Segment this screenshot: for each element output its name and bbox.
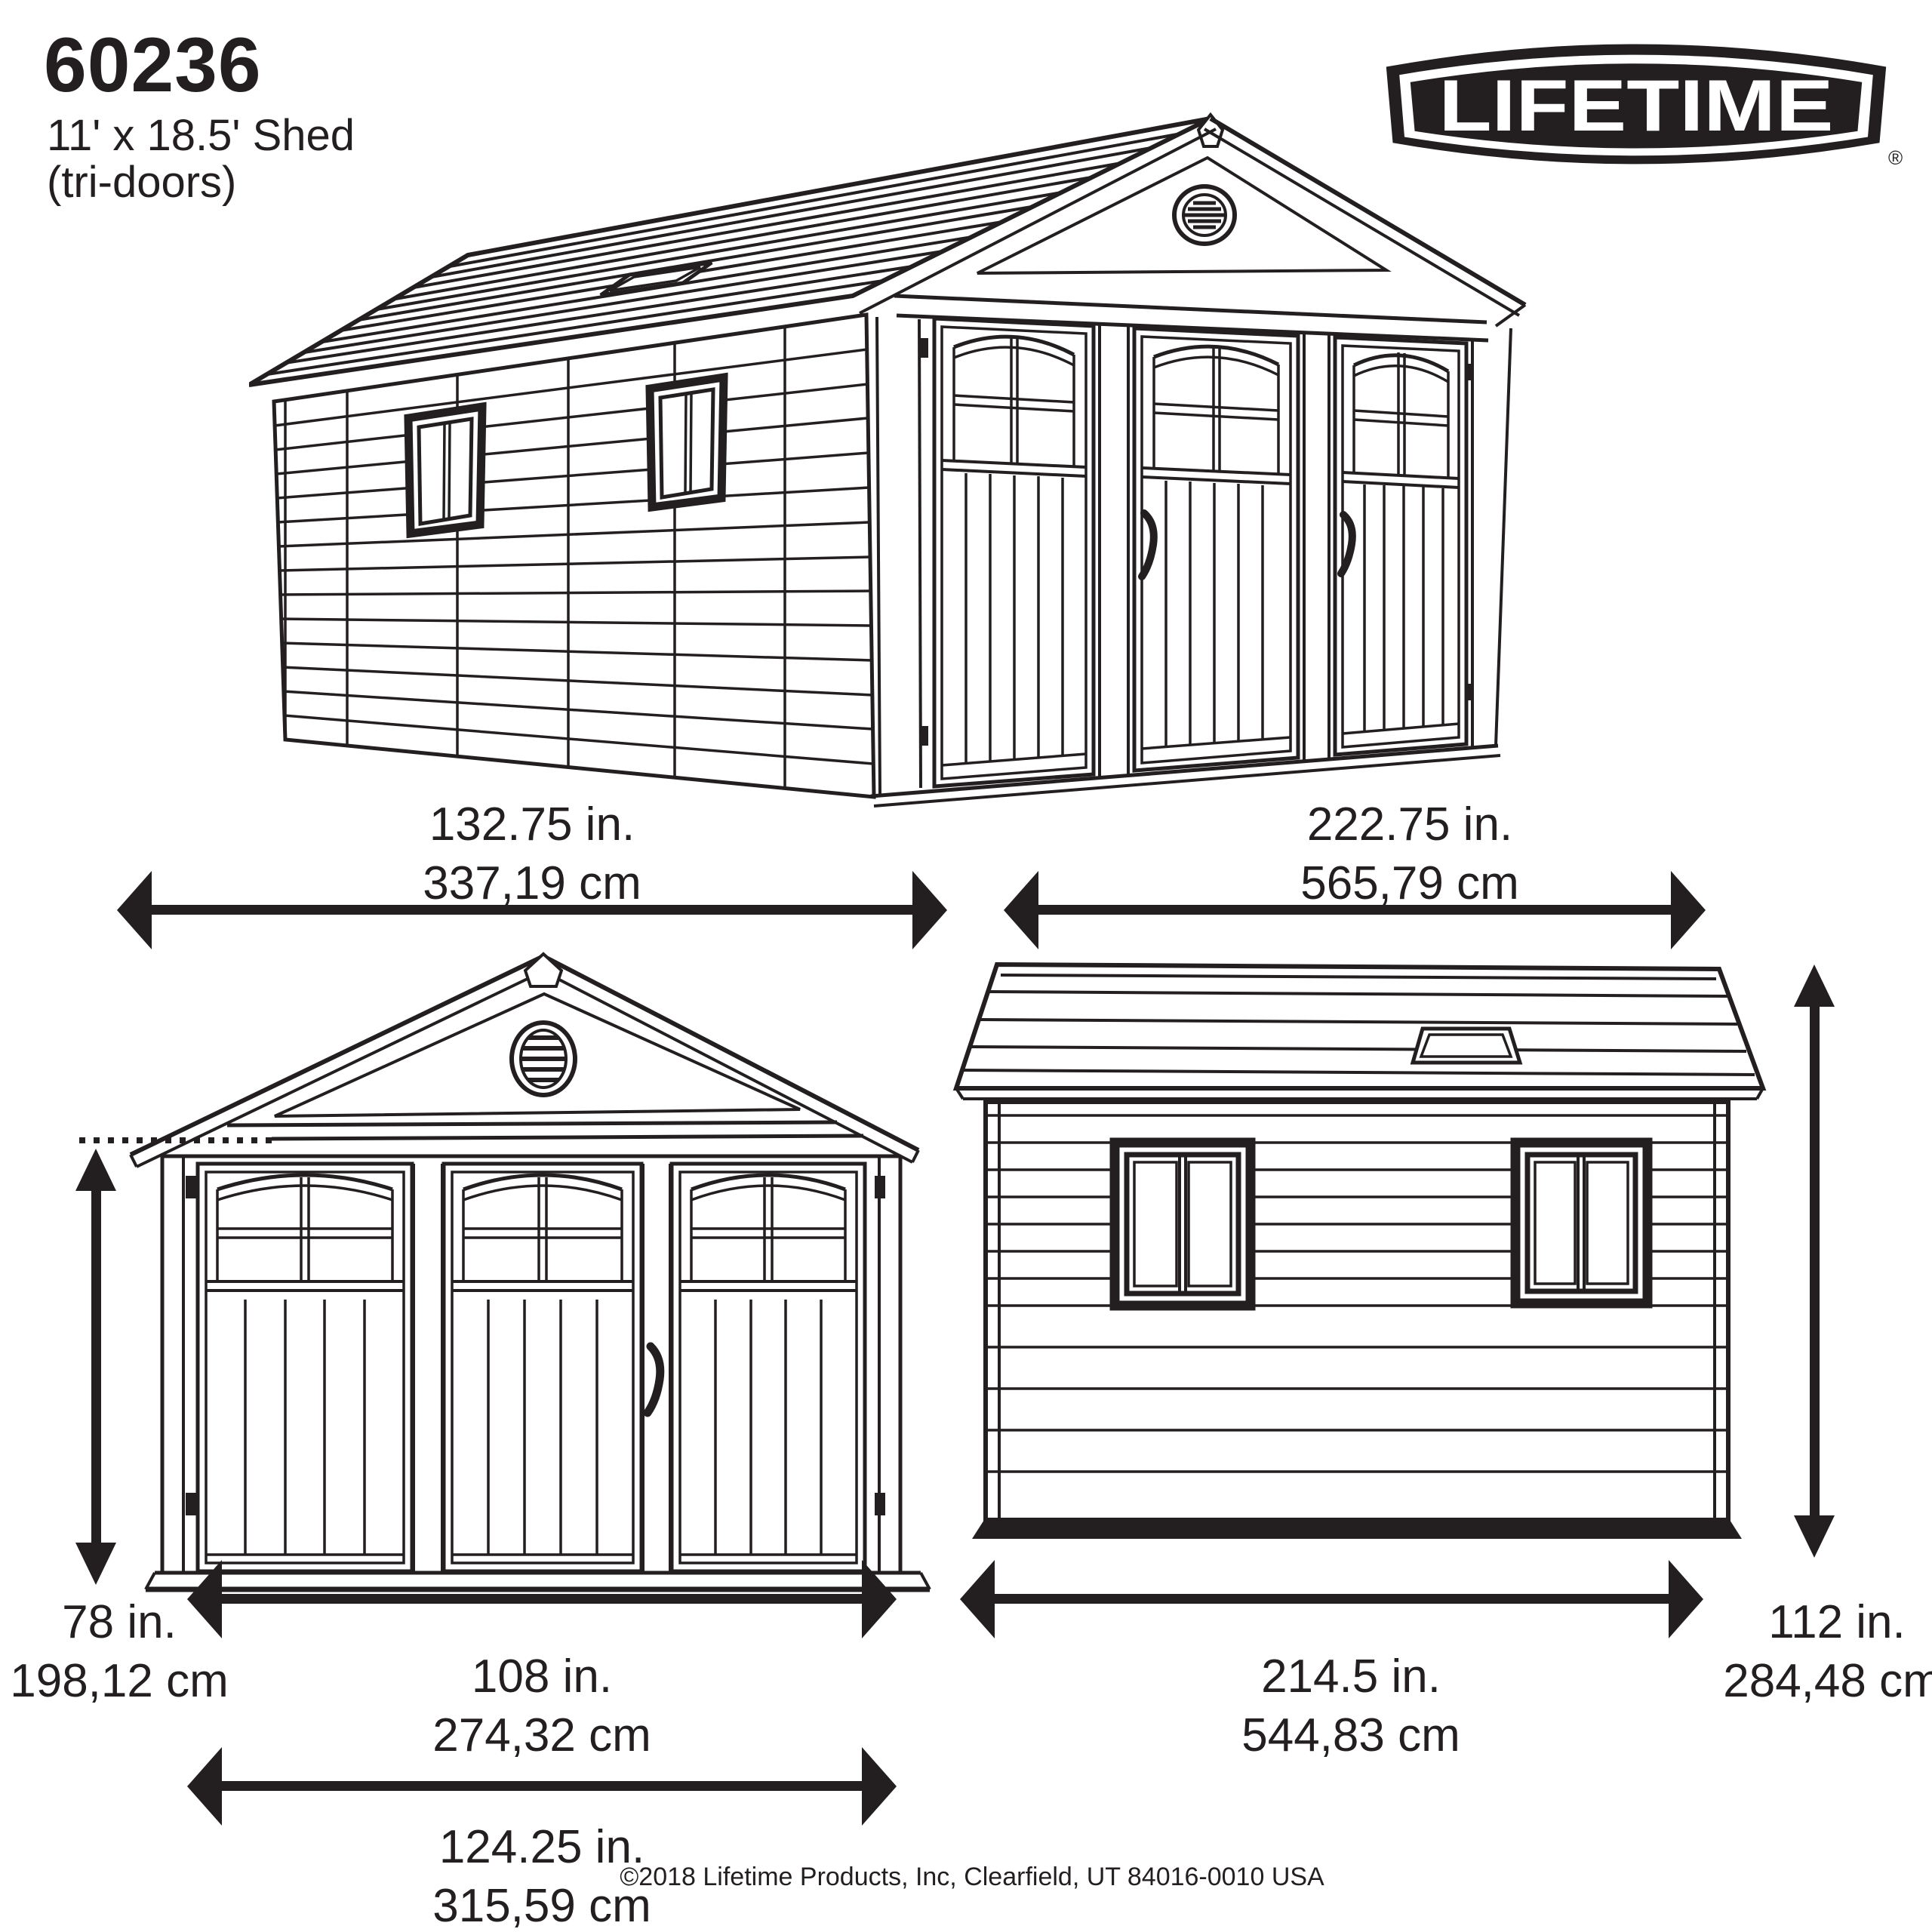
iso-side-window-2 [650,377,724,507]
side-base-width-inches: 214.5 in. [1261,1654,1441,1700]
wall-height-cm: 284,48 cm [1723,1658,1932,1705]
door-height-inches: 78 in. [62,1599,177,1646]
front-door-1 [198,1164,412,1571]
shed-3d-view [249,98,1532,823]
side-base-width-cm: 544,83 cm [1241,1712,1460,1759]
side-overall-width-cm: 565,79 cm [1300,860,1519,907]
iso-door-2 [1134,328,1298,771]
front-base [146,1573,930,1589]
wall-height-arrow [1794,964,1835,1558]
door-opening-width-inches: 108 in. [472,1654,612,1700]
door-height-cm: 198,12 cm [10,1658,229,1705]
front-gable-trim [275,994,800,1116]
front-roof [79,954,918,1167]
product-variant-label: (tri-doors) [47,157,236,208]
front-door-2 [444,1164,660,1571]
side-overall-width-inches: 222.75 in. [1307,801,1512,848]
iso-door-3 [1335,337,1466,755]
front-overall-width-inches: 132.75 in. [429,801,635,848]
shed-spec-sheet: { "colors": { "ink": "#231f20", "paper":… [0,0,1932,1932]
iso-side-wall [274,315,874,797]
door-opening-width-arrow [222,1594,862,1604]
copyright-line: ©2018 Lifetime Products, Inc, Clearfield… [620,1863,1324,1892]
wall-height-inches: 112 in. [1768,1599,1906,1646]
front-overall-width-cm: 337,19 cm [423,860,641,907]
product-model-number: 60236 [44,21,262,109]
shed-front-elevation [15,951,951,1630]
side-base-width-arrow [995,1594,1669,1604]
front-door-3 [672,1164,865,1571]
side-base-strip [972,1520,1742,1539]
side-window-1 [1115,1143,1251,1306]
front-gable-vent [512,1023,575,1095]
registered-trademark-mark: ® [1888,146,1903,170]
front-door-handle [648,1346,660,1413]
side-roof [956,964,1763,1099]
front-base-width-cm: 315,59 cm [432,1883,651,1930]
iso-door-1 [934,318,1094,786]
door-height-arrow [75,1149,116,1585]
iso-gable-vent [1174,186,1235,244]
front-ridge-cap [525,954,561,986]
side-skylight [1413,1029,1520,1063]
front-base-width-inches: 124.25 in. [439,1824,645,1871]
iso-corner-trim [877,317,1329,795]
front-wall [162,1156,900,1571]
front-hinges [186,1176,885,1515]
iso-door-2-handle [1142,513,1154,577]
front-base-width-arrow [222,1781,862,1791]
door-opening-width-cm: 274,32 cm [432,1712,651,1759]
shed-side-elevation [951,951,1894,1630]
side-wall [972,1102,1742,1539]
side-window-2 [1515,1143,1647,1303]
iso-side-window-1 [408,407,482,534]
